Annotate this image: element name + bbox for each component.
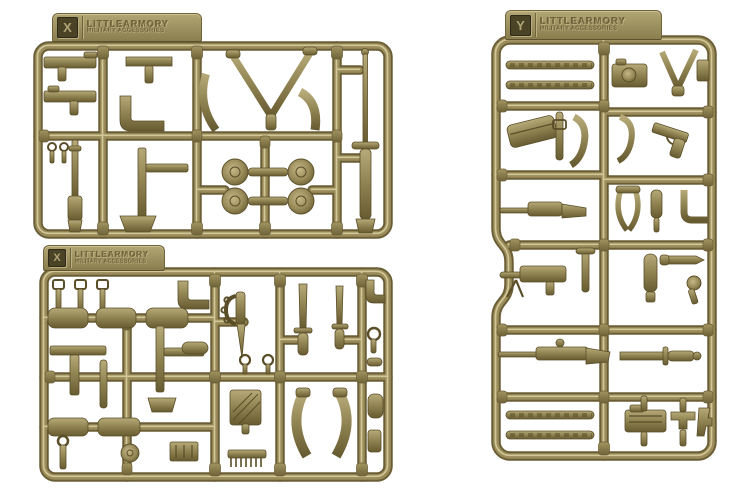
part-wrench [58, 436, 68, 469]
part-small-box [697, 60, 709, 81]
sprue-b-tab: X LITTLEARMORY MILITARY ACCESSORIES [43, 245, 165, 271]
part-wishbone [616, 186, 640, 230]
part-capsule-cylinder [368, 394, 383, 452]
tab-divider [82, 16, 83, 39]
sprue-a-tab: X LITTLEARMORY MILITARY ACCESSORIES [52, 13, 202, 42]
part-ammo-belts-bottom [506, 411, 594, 439]
part-bayonet-horizontal [620, 347, 701, 365]
part-curved-strap [203, 74, 216, 130]
part-bracket [671, 398, 695, 446]
part-disc [121, 444, 139, 462]
part-hose-gun [500, 202, 586, 218]
part-slotted-plate [170, 442, 198, 461]
sprue-c-tab: Y LITTLEARMORY MILITARY ACCESSORIES [505, 10, 662, 40]
part-y-sling [226, 47, 317, 130]
part-hook-right [618, 117, 632, 161]
part-pipe-elbow-1 [120, 96, 164, 131]
part-scope-vertical [644, 254, 657, 302]
part-strap-elbow [178, 281, 209, 309]
part-ring-pins [240, 355, 273, 374]
part-hook-left [571, 117, 585, 165]
part-comb [228, 450, 266, 467]
part-rifle-vertical [68, 140, 82, 232]
part-capsule-small [367, 358, 382, 366]
part-scoped-rifle [498, 339, 610, 364]
tab-divider [70, 248, 71, 268]
sprue-b-runner [44, 271, 389, 477]
sprue-c-runner [496, 39, 714, 456]
part-magazine-pouch [506, 115, 558, 149]
part-knife-horizontal [660, 255, 704, 265]
part-rod-vertical [100, 360, 107, 408]
part-small-hooks [48, 143, 68, 163]
part-submachine-gun-1 [44, 52, 97, 81]
part-flat-pouch-pads-top [48, 308, 188, 328]
part-sword-with-scabbard [352, 49, 379, 234]
part-camera [612, 59, 647, 87]
sprue-b-subtitle-emboss: MILITARY ACCESSORIES [75, 260, 149, 265]
sprue-b-letter-plaque: X [48, 249, 66, 267]
part-t-rod [576, 248, 595, 292]
sprue-c-subtitle-emboss: MILITARY ACCESSORIES [540, 27, 626, 33]
part-tee-rod [148, 326, 208, 412]
part-curved-magazine-a [300, 92, 316, 130]
tab-divider [535, 13, 536, 37]
sprue-c-letter-plaque: Y [510, 15, 531, 36]
part-ring-tool [368, 328, 380, 353]
part-gun-receiver [625, 396, 666, 446]
sprue-a-letter-plaque: X [57, 17, 78, 38]
sprue-a-runner [38, 45, 389, 235]
part-submachine-gun-2 [44, 86, 96, 115]
part-elbow-small [366, 280, 385, 303]
part-ammo-belts-top [506, 61, 594, 89]
sprue-a-subtitle-emboss: MILITARY ACCESSORIES [87, 29, 169, 35]
part-elbow-pipe [684, 190, 708, 220]
part-microphone [687, 276, 701, 305]
part-tee-fitting [120, 148, 188, 232]
part-pipe-bracket-1 [126, 57, 172, 83]
part-l-bar [50, 346, 106, 395]
part-curved-magazines-pair [296, 388, 347, 456]
photo-canvas: X LITTLEARMORY MILITARY ACCESSORIES X LI… [0, 0, 750, 503]
part-capsule-stem [651, 190, 662, 232]
part-pistol [646, 122, 689, 159]
part-v-strap [662, 50, 696, 96]
part-brush [230, 390, 261, 434]
